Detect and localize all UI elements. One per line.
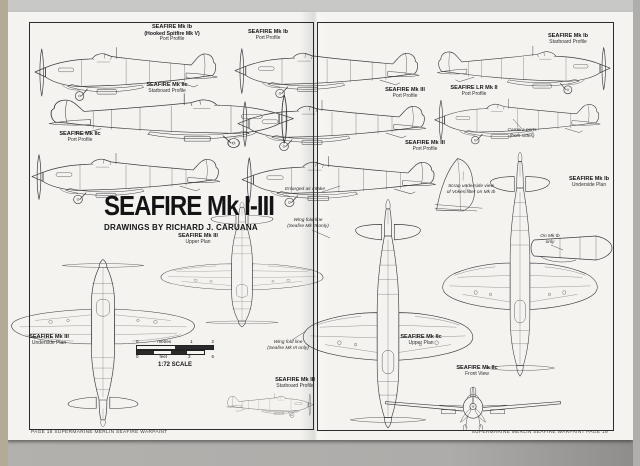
annotation-camera-ports: Camera ports (both sides)	[487, 128, 557, 140]
label-mk-iic-front-view: SEAFIRE Mk IIc Front View	[427, 365, 527, 377]
label-view: Port Profile	[40, 138, 120, 144]
label-mk-iii-underside-plan: SEAFIRE Mk III Underside Plan	[8, 334, 90, 346]
label-mk-iic-starboard: SEAFIRE Mk IIc Starboard Profile	[127, 82, 207, 94]
footer-page-19: SUPERMARINE MERLIN SEAFIRE WARPAINT PAGE…	[472, 430, 608, 435]
metres-tick-1: 1	[190, 340, 193, 345]
metres-unit: metres	[157, 340, 171, 345]
label-view: Underside Plan	[544, 183, 634, 189]
scale-bar-metres	[136, 345, 214, 350]
annotation-text: of Vokes filter on Mk Ib	[425, 190, 517, 196]
feet-tick-2: 6	[211, 355, 214, 360]
metres-tick-2: 2	[211, 340, 214, 345]
label-view: Front View	[427, 372, 527, 378]
label-mk-iii-upper-plan: SEAFIRE Mk III Upper Plan	[148, 233, 248, 245]
feet-tick-1: 3	[188, 355, 191, 360]
footer-page-18: PAGE 18 SUPERMARINE MERLIN SEAFIRE WARPA…	[31, 430, 168, 435]
scale-feet-row: 0 feet 3 6	[136, 355, 214, 360]
label-mk-iii-port-2: SEAFIRE Mk III Port Profile	[375, 140, 475, 152]
label-view: Port Profile	[424, 92, 524, 98]
page-subtitle: DRAWINGS BY RICHARD J. CARUANA	[104, 223, 284, 232]
label-view: Starboard Profile	[250, 384, 340, 390]
page-title: SEAFIRE Mk I-III	[104, 193, 277, 221]
annotation-text: (Seafire Mk III only)	[253, 346, 323, 352]
annotation-vokes-filter-scrap: Scrap underside view of Vokes filter on …	[425, 184, 517, 196]
label-mk-iic-upper-plan: SEAFIRE Mk IIc Upper Plan	[376, 334, 466, 346]
scanned-page-spread: SEAFIRE Mk I-III DRAWINGS BY RICHARD J. …	[0, 0, 640, 466]
scale-ratio-label: 1:72 SCALE	[136, 362, 214, 368]
label-view: Port Profile	[375, 147, 475, 153]
label-lr-mk-ii-port: SEAFIRE LR Mk II Port Profile	[424, 85, 524, 97]
title-block: SEAFIRE Mk I-III DRAWINGS BY RICHARD J. …	[104, 193, 284, 232]
feet-unit: feet	[159, 355, 167, 360]
label-view: Port Profile	[112, 37, 232, 43]
annotation-text: only	[527, 240, 573, 246]
label-view: Starboard Profile	[127, 89, 207, 95]
label-mk-iii-starboard: SEAFIRE Mk III Starboard Profile	[250, 377, 340, 389]
annotation-text: (Seafire Mk III only)	[273, 224, 343, 230]
annotation-wing-fold-line-1: Wing fold-line (Seafire Mk III only)	[273, 218, 343, 230]
label-mk-ib-port: SEAFIRE Mk Ib Port Profile	[218, 29, 318, 41]
feet-tick-0: 0	[136, 355, 139, 360]
annotation-text: (both sides)	[487, 134, 557, 140]
annotation-enlarged-air-intake: Enlarged air intake	[270, 187, 340, 193]
annotation-on-mk-ib-only: On Mk Ib only	[527, 234, 573, 246]
label-view: Upper Plan	[376, 341, 466, 347]
label-name: SEAFIRE Mk Ib	[112, 24, 232, 31]
label-view: Upper Plan	[148, 240, 248, 246]
label-mk-ib-hooked-port: SEAFIRE Mk Ib (Hooked Spitfire Mk V) Por…	[112, 24, 232, 43]
label-mk-ib-starboard: SEAFIRE Mk Ib Starboard Profile	[523, 33, 613, 45]
label-view: Starboard Profile	[523, 40, 613, 46]
label-mk-ib-underside-plan: SEAFIRE Mk Ib Underside Plan	[544, 176, 634, 188]
scale-bar: 0 metres 1 2 0 feet 3 6 1:72 SCALE	[136, 340, 214, 368]
annotation-text: Enlarged air intake	[270, 187, 340, 193]
metres-tick-0: 0	[136, 340, 139, 345]
label-mk-iic-port: SEAFIRE Mk IIc Port Profile	[40, 131, 120, 143]
label-view: Underside Plan	[8, 341, 90, 347]
label-view: Port Profile	[218, 36, 318, 42]
annotation-wing-fold-line-2: Wing fold line (Seafire Mk III only)	[253, 340, 323, 352]
